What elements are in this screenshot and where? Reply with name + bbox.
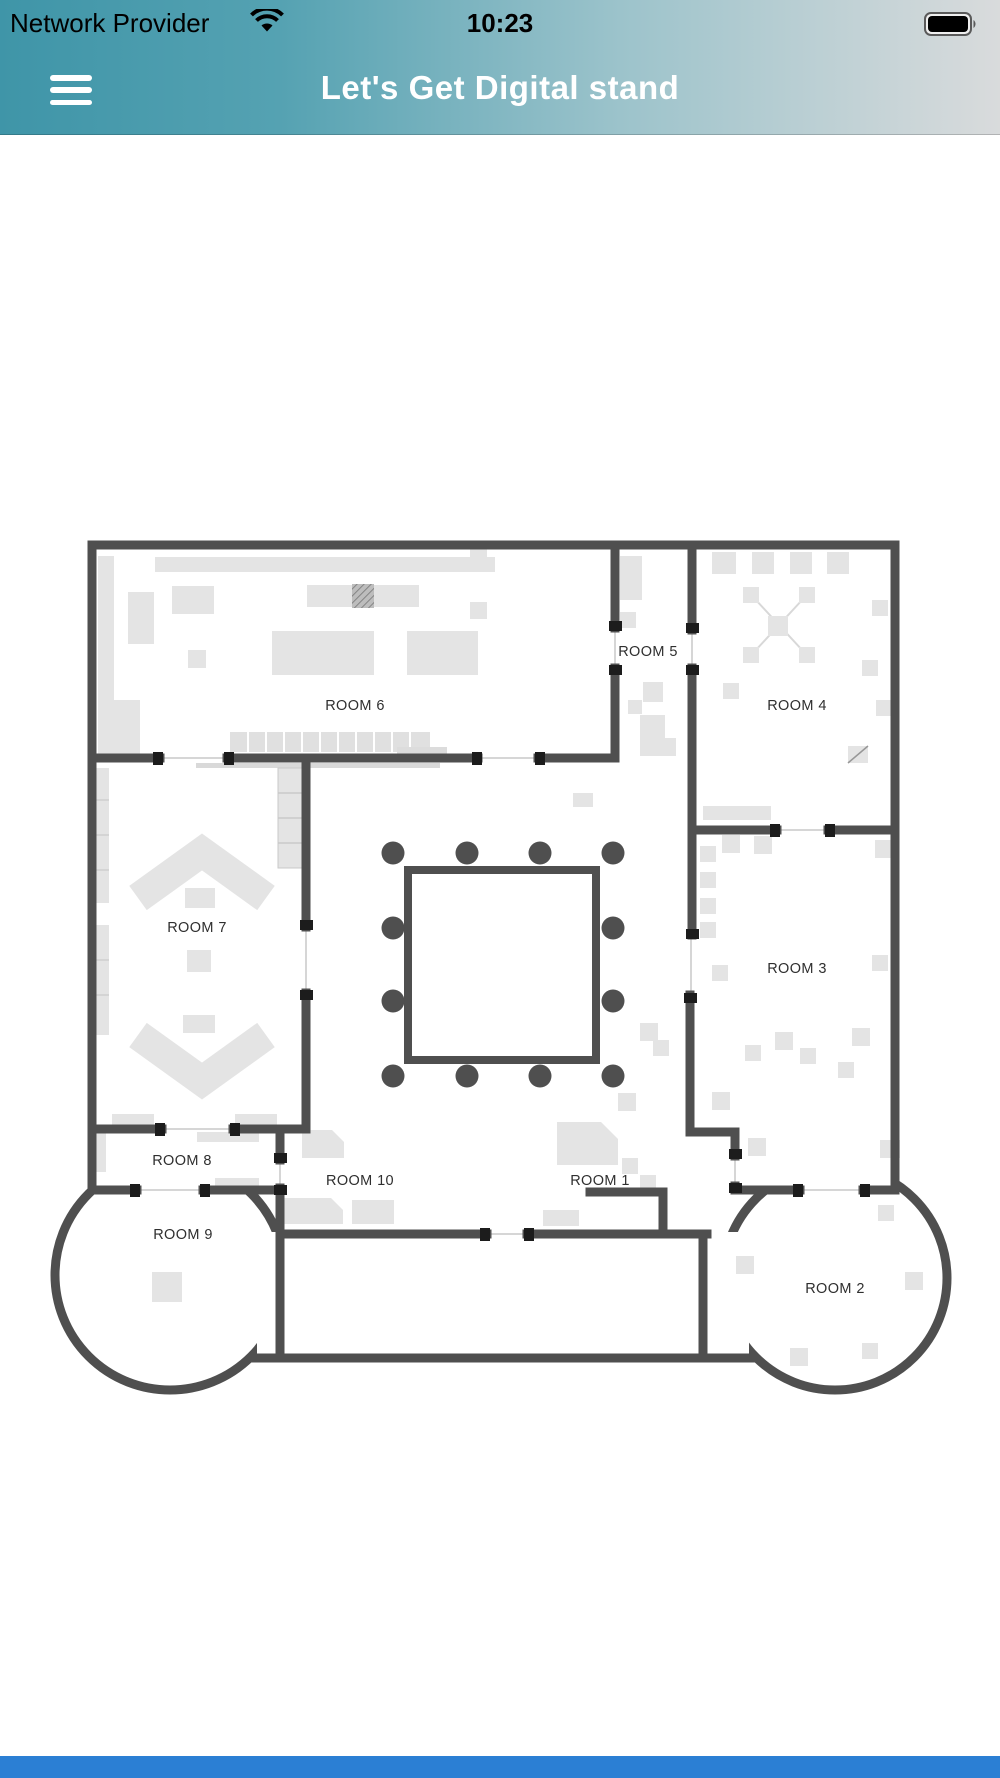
battery-icon xyxy=(924,12,978,41)
app-top-bar: Network Provider 10:23 Let's Get Digital… xyxy=(0,0,1000,135)
status-bar: Network Provider 10:23 xyxy=(0,0,1000,47)
room-label-5[interactable]: ROOM 5 xyxy=(618,644,678,660)
room-label-10[interactable]: ROOM 10 xyxy=(326,1173,394,1189)
floor-plan-map[interactable]: ROOM 1 ROOM 2 ROOM 3 ROOM 4 ROOM 5 ROOM … xyxy=(0,440,1000,1450)
room-label-9[interactable]: ROOM 9 xyxy=(153,1227,213,1243)
room-label-2[interactable]: ROOM 2 xyxy=(805,1281,865,1297)
room-label-4[interactable]: ROOM 4 xyxy=(767,698,827,714)
status-time: 10:23 xyxy=(0,8,1000,39)
room-label-7[interactable]: ROOM 7 xyxy=(167,920,227,936)
room-label-1[interactable]: ROOM 1 xyxy=(570,1173,630,1189)
app-header: Let's Get Digital stand xyxy=(0,47,1000,134)
lower-corridor-floor xyxy=(257,1232,749,1356)
room-label-8[interactable]: ROOM 8 xyxy=(152,1153,212,1169)
highlighted-stand[interactable] xyxy=(352,584,374,608)
page-title: Let's Get Digital stand xyxy=(0,69,1000,107)
footer-accent-bar xyxy=(0,1756,1000,1778)
room-label-3[interactable]: ROOM 3 xyxy=(767,961,827,977)
conference-table xyxy=(382,842,625,1088)
room-label-6[interactable]: ROOM 6 xyxy=(325,698,385,714)
